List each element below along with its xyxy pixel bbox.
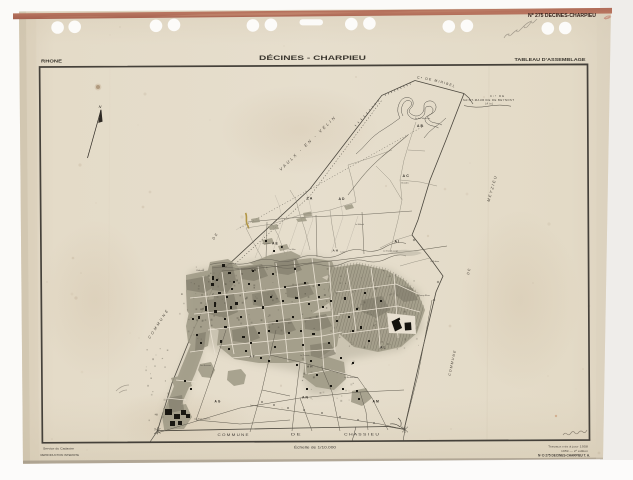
svg-text:DÉCINES - CHARPIEU: DÉCINES - CHARPIEU — [259, 53, 366, 62]
svg-text:Les Brosses: Les Brosses — [200, 365, 211, 367]
svg-text:AI: AI — [395, 240, 401, 244]
svg-text:Champ Blanc: Champ Blanc — [418, 295, 430, 297]
svg-text:AF: AF — [250, 355, 256, 359]
svg-text:AH: AH — [307, 365, 314, 369]
svg-text:Service du Cadastre: Service du Cadastre — [43, 447, 74, 451]
svg-text:C O M M U N E: C O M M U N E — [218, 432, 249, 437]
svg-text:Charpieu: Charpieu — [196, 270, 204, 272]
svg-text:Large: Large — [341, 252, 347, 254]
svg-text:AM: AM — [373, 400, 380, 404]
svg-text:AD: AD — [339, 197, 346, 201]
svg-text:Ile des Mouches: Ile des Mouches — [415, 118, 430, 120]
svg-text:C H A S S I E U: C H A S S I E U — [344, 431, 379, 436]
svg-text:Le Mas: Le Mas — [289, 249, 296, 251]
svg-text:RHONE: RHONE — [41, 59, 62, 64]
svg-text:AE: AE — [272, 242, 279, 246]
svg-text:Échelle de 1/10.000: Échelle de 1/10.000 — [294, 445, 337, 450]
svg-text:Le Prainet: Le Prainet — [300, 354, 310, 357]
svg-text:Le Molard: Le Molard — [355, 224, 364, 226]
svg-text:AG: AG — [215, 400, 222, 404]
svg-text:AB: AB — [417, 124, 424, 128]
svg-text:Nº 275 DECINES-CHARPIEU: Nº 275 DECINES-CHARPIEU — [528, 13, 596, 19]
svg-text:AN: AN — [302, 396, 309, 400]
svg-text:AC: AC — [403, 174, 410, 178]
svg-text:Les Sept Chemins: Les Sept Chemins — [194, 418, 210, 421]
svg-text:AE: AE — [251, 268, 257, 272]
svg-text:Cⁿ⁰ DE: Cⁿ⁰ DE — [490, 94, 504, 98]
svg-text:REPRODUCTION INTERDITE: REPRODUCTION INTERDITE — [41, 453, 80, 457]
svg-text:La Grande Large: La Grande Large — [383, 251, 399, 253]
svg-text:La Berthaudière: La Berthaudière — [344, 376, 359, 379]
svg-text:D E: D E — [291, 432, 301, 437]
svg-text:(Ain): (Ain) — [485, 102, 493, 105]
svg-text:AH: AH — [333, 249, 340, 253]
svg-text:Grandes: Grandes — [401, 183, 409, 185]
svg-text:La Rubina: La Rubina — [430, 261, 440, 263]
svg-text:Le Centre: Le Centre — [262, 242, 272, 245]
svg-text:N: N — [99, 105, 102, 109]
svg-text:TABLEAU D’ASSEMBLAGE: TABLEAU D’ASSEMBLAGE — [515, 57, 586, 62]
svg-text:AL: AL — [380, 346, 387, 350]
svg-text:SAINT-MAURICE DE BEYNOST: SAINT-MAURICE DE BEYNOST — [463, 98, 514, 102]
svg-text:Travaux mis à jour 1958: Travaux mis à jour 1958 — [548, 444, 588, 448]
svg-text:ZA: ZA — [307, 197, 314, 201]
svg-text:Nº D 275 DECINES-CHARPIEU T.: Nº D 275 DECINES-CHARPIEU T. A. — [538, 453, 590, 457]
